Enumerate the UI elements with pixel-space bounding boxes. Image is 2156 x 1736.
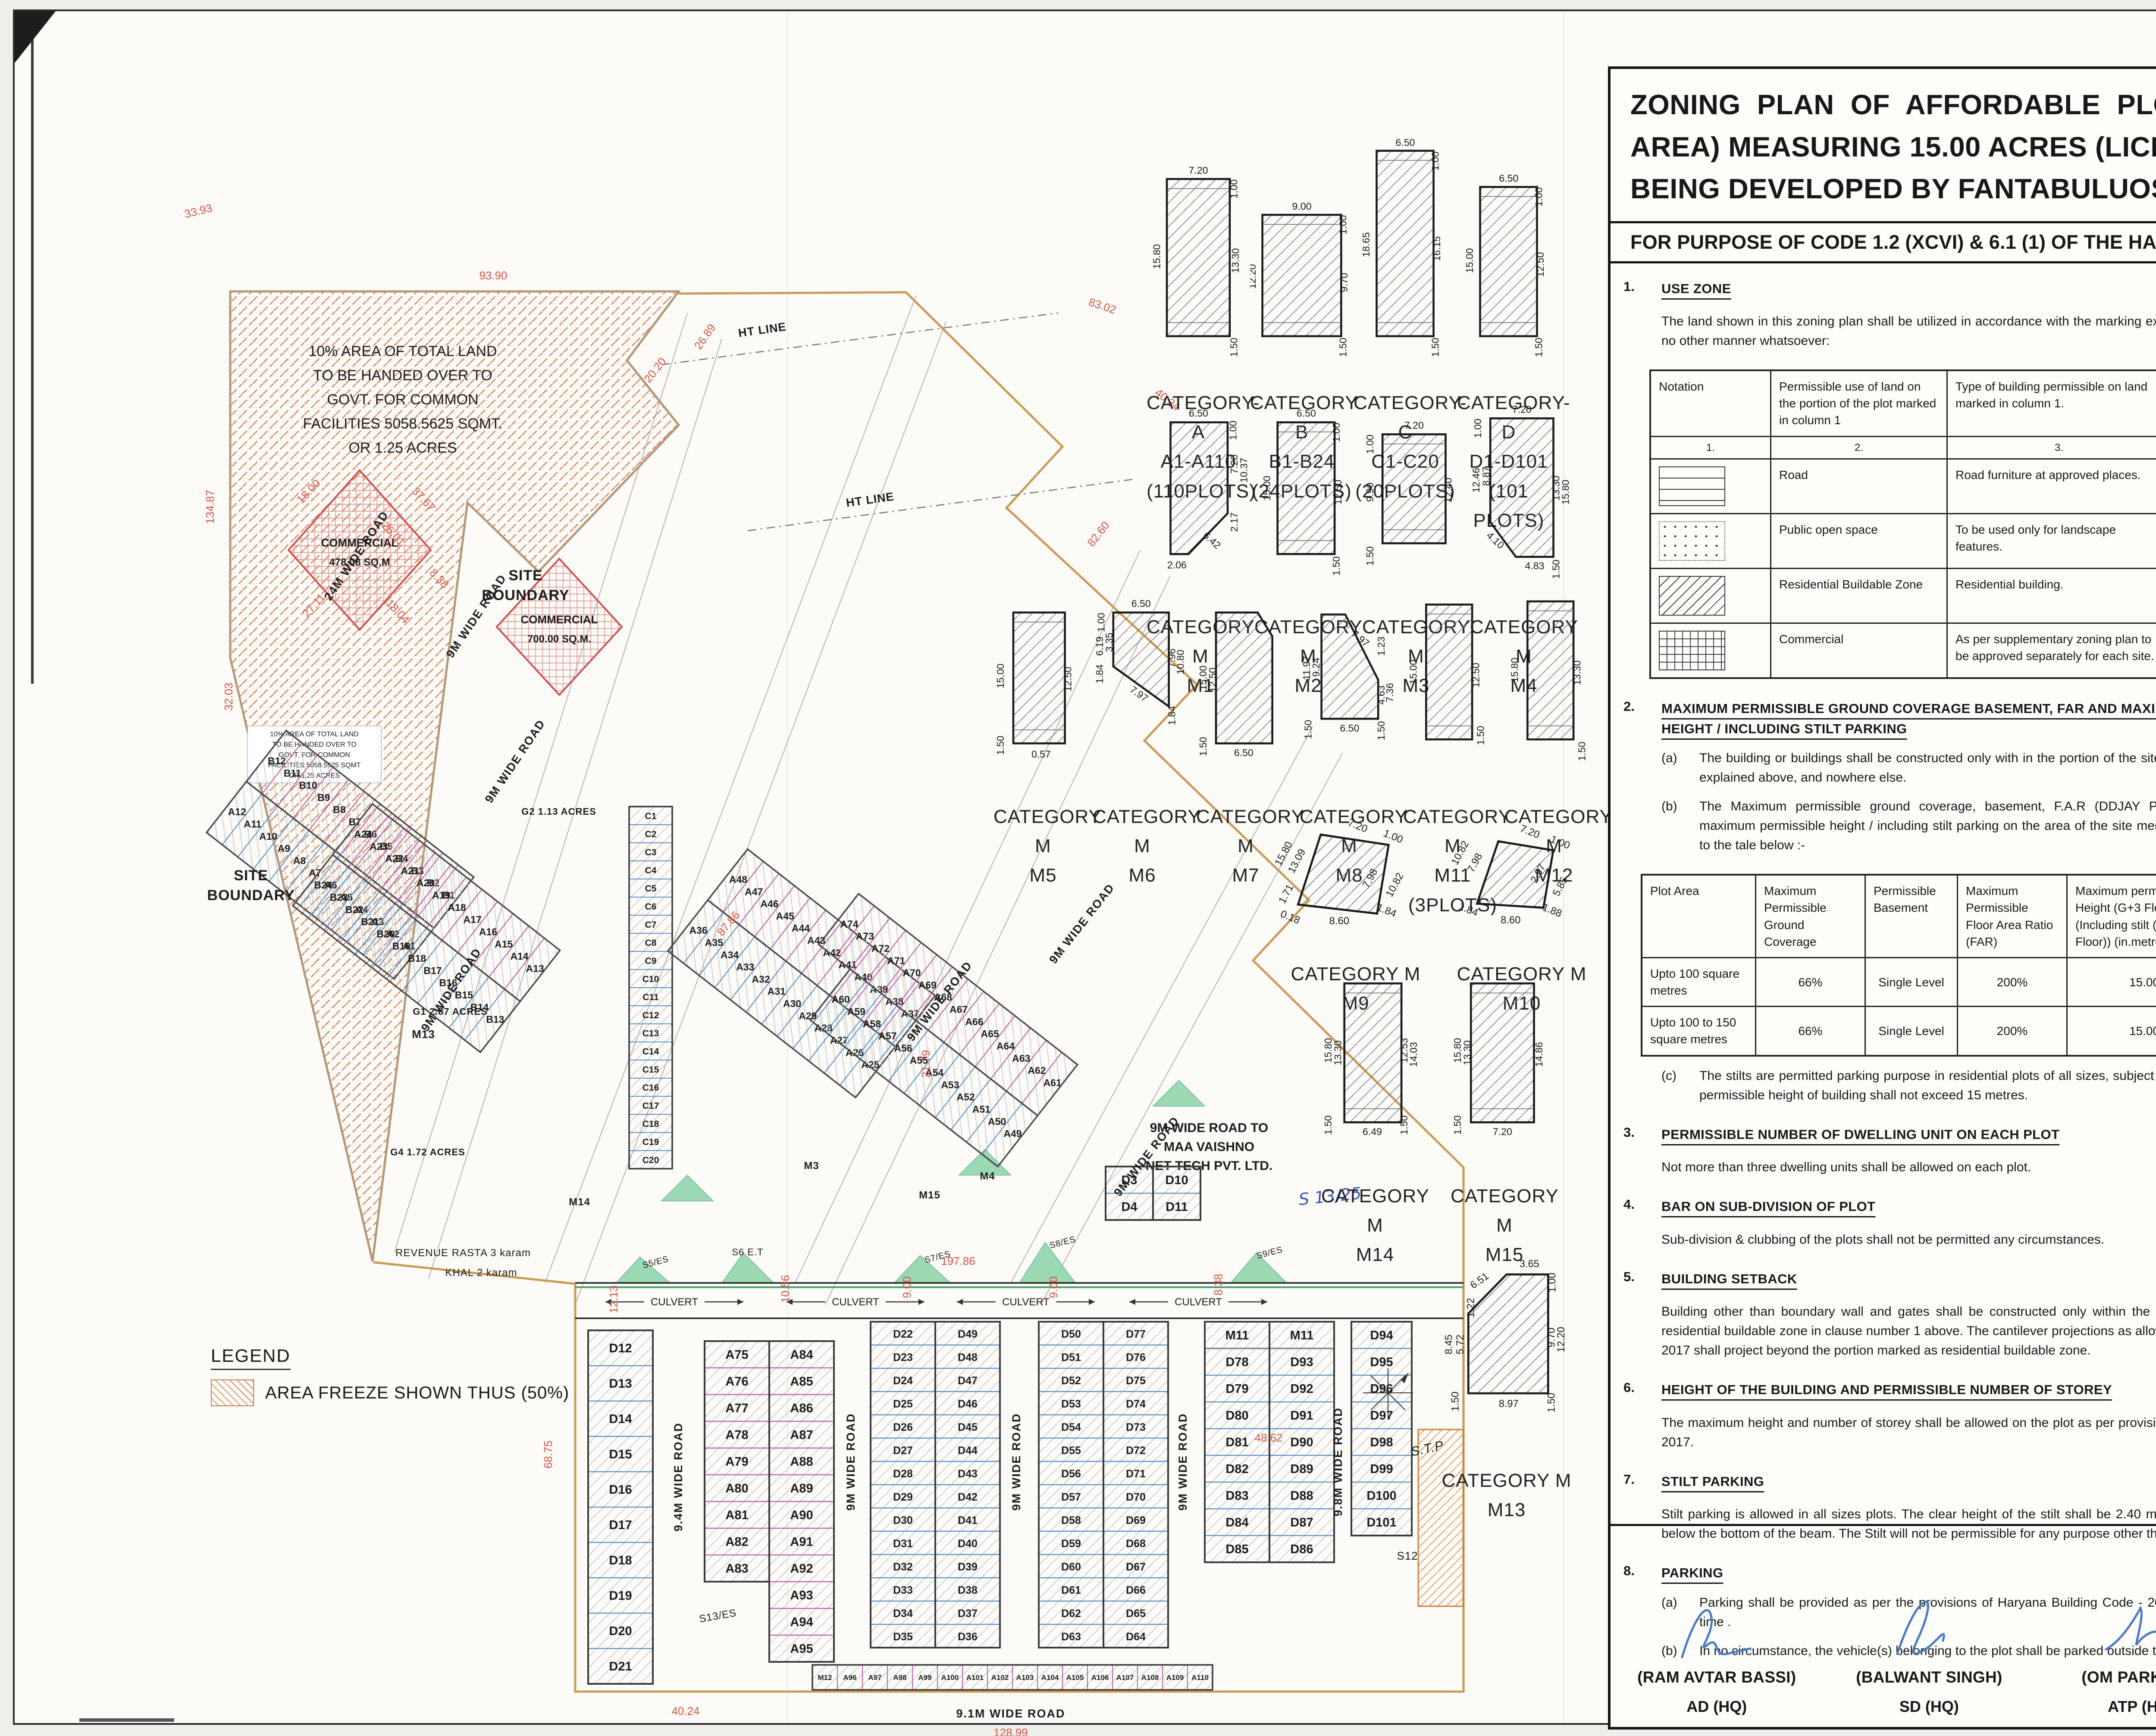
plot-number: C12: [642, 1010, 659, 1020]
plot-number: D61: [1061, 1584, 1081, 1596]
category-caption-line: CATEGORY M: [993, 802, 1093, 861]
plot-number: A103: [1016, 1673, 1034, 1682]
use-zone-header: Permissible use of land on the portion o…: [1771, 370, 1947, 436]
dimension-label: 14.03: [1408, 1042, 1419, 1067]
plot-number: A93: [790, 1589, 813, 1602]
dimension-label: 1.84: [1375, 901, 1398, 920]
dimension-label: 1.50: [1376, 721, 1387, 741]
dimension-label: 7.20: [1189, 165, 1208, 176]
plot-number: C2: [645, 829, 657, 839]
plot-number: A34: [721, 949, 739, 960]
plot-number: A96: [843, 1673, 856, 1682]
handover-note-line: TO BE HANDED OVER TO: [313, 367, 492, 384]
clause-item: (c)The stilts are permitted parking purp…: [1661, 1066, 2156, 1105]
plot-number: D47: [958, 1375, 978, 1387]
plot-number: D79: [1225, 1382, 1248, 1396]
dimension-label: 2.17: [1228, 513, 1240, 532]
green-space: [661, 1175, 713, 1201]
signature-stroke: [2106, 1608, 2156, 1649]
plot-outline: [1377, 151, 1434, 336]
category-caption: CATEGORY MM13: [1433, 1466, 1580, 1525]
category-shape: 15.8013.3014.867.201.50: [1451, 951, 1558, 1179]
notation-cell: [1650, 623, 1771, 679]
plot-number: A22: [385, 853, 403, 864]
plot-number: D69: [1126, 1514, 1146, 1526]
coverage-header: Maximum permissible Height (G+3 Floor) (…: [2067, 875, 2156, 957]
plot-number: D78: [1225, 1355, 1248, 1369]
plot-number: D73: [1126, 1421, 1146, 1433]
dimension-label: 12.20: [1556, 1327, 1567, 1352]
category-shape: 15.8013.301.50: [1504, 572, 1604, 800]
plot-number: A17: [464, 914, 482, 925]
plot-number: D25: [893, 1398, 913, 1410]
handover-note-line: GOVT. FOR COMMON: [327, 391, 478, 408]
scan-mark: [79, 1718, 174, 1722]
plot-number: A8: [293, 855, 306, 866]
dimension-label: 7.20: [1512, 404, 1532, 415]
plot-number: A62: [1028, 1065, 1046, 1076]
plan-text: M13: [412, 1028, 435, 1041]
plot-number: A92: [790, 1562, 813, 1576]
plot-number: A82: [725, 1535, 748, 1549]
dimension-label: 12.50: [1535, 252, 1546, 277]
plot-number: D45: [958, 1421, 978, 1433]
item-tag: (a): [1661, 748, 1699, 787]
plot-outline: [1216, 613, 1272, 744]
plot-number: D10: [1165, 1173, 1188, 1187]
signature-block: (BALWANT SINGH)SD (HQ): [1823, 1592, 2036, 1716]
handover-note-line: 10% AREA OF TOTAL LAND: [308, 343, 497, 360]
plot-number: C11: [642, 992, 659, 1002]
plot-number: D64: [1126, 1631, 1146, 1643]
plot-number: A79: [725, 1455, 748, 1469]
plot-number: D38: [958, 1584, 978, 1596]
plot-number: A12: [228, 806, 246, 817]
plot-number: A97: [868, 1673, 881, 1682]
plot-number: A72: [871, 943, 890, 954]
category-caption: CATEGORY MM14: [1321, 1182, 1429, 1270]
plot-number: D81: [1225, 1436, 1248, 1449]
plot-number: D65: [1126, 1608, 1146, 1620]
plan-text: KHAL 2 karam: [445, 1267, 517, 1279]
plot-number: C6: [645, 902, 657, 912]
plot-number: D68: [1126, 1538, 1146, 1550]
dimension-label: 15.80: [1560, 480, 1571, 505]
plot-number: A14: [510, 951, 528, 962]
use-zone-colnum: 1.: [1650, 436, 1771, 459]
plot-number: A69: [918, 979, 937, 991]
plot-number: D88: [1290, 1489, 1313, 1503]
dimension-label: 13.30: [1230, 248, 1241, 273]
plot-number: D31: [893, 1538, 913, 1550]
plot-number: B12: [268, 755, 286, 766]
plot-number: D67: [1126, 1561, 1146, 1573]
dimension-label: 1.00: [1430, 151, 1441, 171]
plot-number: C20: [642, 1155, 659, 1165]
arrow-head: [1089, 1299, 1095, 1305]
item-text: The stilts are permitted parking purpose…: [1699, 1066, 2156, 1105]
dimension-label: 3.65: [1520, 1258, 1539, 1270]
plan-text: REVENUE RASTA 3 karam: [395, 1247, 531, 1259]
plot-number: C16: [642, 1083, 659, 1093]
arrow-head: [737, 1299, 743, 1305]
category-caption-line: M13: [1433, 1495, 1580, 1525]
green-space: [1153, 1080, 1205, 1106]
plot-number: M11: [1225, 1329, 1249, 1342]
clause: 2.MAXIMUM PERMISSIBLE GROUND COVERAGE BA…: [1623, 699, 2156, 1105]
plot-number: D17: [609, 1518, 632, 1532]
plot-number: D13: [609, 1377, 632, 1391]
plot-number: A19: [432, 890, 450, 901]
category-shape: 3.651.006.511.225.728.459.7012.208.971.5…: [1433, 1236, 1580, 1464]
plot-number: D24: [893, 1375, 913, 1387]
clause-heading: STILT PARKING: [1661, 1472, 1764, 1492]
category-caption-line: CATEGORY M: [1433, 1466, 1580, 1495]
plan-text: M15: [919, 1189, 940, 1201]
dimension-label: 10.82: [1384, 871, 1406, 899]
plot-number: D101: [1366, 1516, 1396, 1530]
category-caption-line: M14: [1321, 1240, 1429, 1270]
plot-number: A61: [1044, 1077, 1062, 1088]
category-caption: CATEGORY MM5: [993, 802, 1093, 891]
dimension-label: 6.50: [1499, 173, 1519, 184]
plot-number: A33: [736, 961, 754, 973]
dimension-label: 8.60: [1329, 915, 1349, 927]
coverage-cell: 15.00: [2067, 1007, 2156, 1056]
dimension-text: 9.00: [900, 1276, 913, 1298]
dimension-label: 1.23: [1376, 637, 1387, 656]
plot-number: A100: [941, 1673, 959, 1682]
plot-number: D12: [609, 1342, 632, 1355]
coverage-header: Permissible Basement: [1865, 875, 1958, 957]
dimension-label: 13.30: [1572, 660, 1583, 685]
arrow-head: [1261, 1299, 1267, 1305]
plot-number: D94: [1370, 1329, 1393, 1342]
dimension-label: 1.84: [1094, 664, 1105, 684]
plot-number: A20: [417, 877, 435, 888]
clause-item: (a)The building or buildings shall be co…: [1661, 748, 2156, 787]
plot-number: D87: [1290, 1516, 1313, 1530]
plot-number: A84: [790, 1348, 813, 1362]
plot-number: D16: [609, 1483, 632, 1497]
legend-title: LEGEND: [211, 1345, 291, 1370]
dimension-label: 1.00: [1382, 827, 1404, 845]
plan-text: SITE: [508, 567, 543, 584]
plot-number: A36: [689, 925, 708, 936]
category-shape: 7.971.2311.979.244.637.366.501.501.50: [1300, 572, 1399, 800]
item-text: The building or buildings shall be const…: [1699, 748, 2156, 787]
site-plan: COMMERCIAL478.08 SQ.MCOMMERCIAL700.00 SQ…: [15, 11, 1608, 1736]
plot-number: D4: [1121, 1200, 1137, 1214]
dimension-label: 9.24: [1310, 657, 1322, 677]
type-cell: Residential building.: [1947, 569, 2156, 623]
dimension-text: 134.87: [204, 490, 216, 524]
road-label: 9.1M WIDE ROAD: [956, 1707, 1065, 1720]
plan-text: S5/ES: [642, 1254, 670, 1270]
notation-cell: [1650, 569, 1771, 623]
dimension-label: 1.88: [1541, 901, 1564, 920]
dimension-label: 7.20: [1346, 816, 1369, 835]
drawing-title: ZONING PLAN OF AFFORDABLE PLOTTED HOUSIN…: [1630, 84, 2156, 210]
dimension-label: 1.00: [1228, 179, 1239, 199]
plot-number: B11: [284, 767, 301, 779]
signatory-name: (BALWANT SINGH): [1823, 1668, 2036, 1686]
dimension-label: 12.46: [1470, 468, 1482, 493]
dimension-label: 1.00: [1472, 419, 1483, 438]
clause-heading: MAXIMUM PERMISSIBLE GROUND COVERAGE BASE…: [1661, 699, 2156, 739]
plan-text: S13/ES: [698, 1607, 737, 1625]
plot-number: B18: [408, 953, 426, 964]
dimension-label: 1.22: [1465, 1298, 1476, 1318]
plot-number: A18: [448, 902, 466, 913]
plot-number: A58: [863, 1018, 881, 1029]
signature-stroke: [1682, 1610, 1750, 1657]
plot-number: A63: [1012, 1053, 1030, 1064]
plot-number: A50: [988, 1116, 1006, 1127]
plot-number: A46: [760, 898, 778, 910]
use-cell: Residential Buildable Zone: [1771, 569, 1947, 623]
category-shape: 10.827.987.201.002.975.858.601.881.84: [1438, 802, 1606, 957]
signatory-title: SD (HQ): [1823, 1698, 2036, 1716]
use-zone-row: RoadRoad furniture at approved places.: [1650, 459, 2156, 514]
dimension-text: 32.03: [222, 682, 235, 710]
dimension-label: 5.85: [1551, 875, 1570, 898]
plot-number: D89: [1290, 1462, 1313, 1476]
plot-number: D35: [893, 1631, 913, 1643]
coverage-cell: Upto 100 square metres: [1642, 957, 1756, 1006]
plot-number: B10: [299, 780, 317, 791]
dimension-label: 1.50: [1364, 546, 1376, 566]
category-diagram: 15.0012.501.500.57CATEGORY MM5: [993, 572, 1093, 891]
plot-number: A51: [972, 1104, 990, 1115]
category-caption-line: CATEGORY M: [1093, 802, 1192, 861]
dimension-label: 9.00: [1292, 200, 1312, 212]
category-shape: 15.8013.097.201.007.9810.828.601.841.710…: [1265, 802, 1446, 957]
clause: 4.BAR ON SUB-DIVISION OF PLOTSub-divisio…: [1623, 1197, 2156, 1249]
plot-number: A45: [776, 910, 794, 922]
plot-number: D97: [1370, 1409, 1393, 1423]
category-caption-line: M6: [1093, 861, 1192, 890]
plot-number: A104: [1041, 1673, 1059, 1682]
clause-paragraph: Not more than three dwelling units shall…: [1661, 1157, 2156, 1177]
plot-number: D92: [1290, 1382, 1313, 1396]
type-cell: As per supplementary zoning plan to be a…: [1947, 623, 2156, 679]
notes-panel: ZONING PLAN OF AFFORDABLE PLOTTED HOUSIN…: [1608, 66, 2156, 1730]
plot-number: A32: [752, 973, 770, 985]
plot-number: C18: [642, 1119, 659, 1129]
dimension-text: 68.75: [542, 1440, 555, 1468]
category-caption-line: CATEGORY M: [1451, 1182, 1558, 1240]
plot-outline: [1013, 613, 1065, 744]
dimension-text: 93.90: [479, 269, 507, 282]
plot-number: A31: [768, 986, 786, 997]
dimension-text: 12.13: [607, 1285, 620, 1313]
plot-number: A78: [725, 1428, 748, 1442]
dimension-label: 1.00: [1096, 613, 1107, 632]
coverage-cell: Upto 100 to 150 square metres: [1642, 1007, 1756, 1056]
plot-number: C13: [642, 1029, 659, 1038]
plot-number: B20: [377, 928, 395, 939]
plot-number: C14: [642, 1047, 659, 1057]
category-shape: 7.201.0015.8013.301.50: [1147, 119, 1250, 386]
dimension-text: 82.60: [1084, 519, 1112, 549]
road-label: 9M WIDE ROAD: [1176, 1413, 1189, 1511]
coverage-cell: Single Level: [1865, 957, 1958, 1006]
plot-outline: [1382, 434, 1445, 543]
plan-text: G2 1.13 ACRES: [521, 806, 596, 817]
dimension-label: 7.36: [1384, 683, 1395, 702]
road-label: 9M WIDE ROAD: [1047, 881, 1117, 966]
category-shape: 9.001.0012.209.701.50: [1250, 119, 1354, 386]
dimension-text: 48.62: [1254, 1431, 1282, 1444]
plot-number: A60: [832, 994, 850, 1005]
dimension-label: 1.50: [1450, 1392, 1461, 1411]
dimension-label: 18.65: [1360, 232, 1372, 257]
plot-number: D49: [958, 1328, 978, 1340]
plot-number: A56: [894, 1042, 912, 1054]
plot-number: D40: [958, 1538, 978, 1550]
clause-heading: USE ZONE: [1661, 279, 1731, 299]
dimension-label: 8.97: [1499, 1398, 1519, 1410]
coverage-header: Maximum Permissible Ground Coverage: [1756, 875, 1865, 957]
dimension-label: 1.00: [1337, 215, 1348, 235]
plot-number: A9: [278, 843, 290, 854]
dimension-label: 12.40: [1442, 478, 1454, 503]
dimension-label: 14.86: [1533, 1042, 1545, 1067]
plot-number: A71: [887, 955, 905, 966]
plot-number: A108: [1141, 1673, 1159, 1682]
plot-number: A53: [941, 1079, 959, 1090]
coverage-header: Maximum Permissible Floor Area Ratio (FA…: [1958, 875, 2067, 957]
ht-line: [661, 313, 1058, 365]
plot-number: B8: [333, 804, 346, 815]
use-zone-row: Public open spaceTo be used only for lan…: [1650, 514, 2156, 569]
plot-number: A59: [847, 1006, 865, 1017]
plot-number: A48: [729, 874, 747, 885]
signatory-title: ATP (HQ): [2035, 1698, 2156, 1716]
plan-text: G1 2.87 ACRES: [413, 1006, 488, 1017]
clause-number: 5.: [1623, 1269, 1661, 1289]
plot-number: A35: [705, 937, 723, 948]
plot-number: A44: [792, 923, 810, 934]
dimension-label: 13.30: [1461, 1040, 1473, 1065]
plot-number: D41: [958, 1514, 978, 1526]
use-zone-header: Type of building permissible on land mar…: [1947, 370, 2156, 436]
dimension-label: 15.80: [1151, 244, 1162, 269]
plot-number: A16: [479, 926, 497, 938]
dimension-text: 26.89: [692, 322, 718, 352]
dimension-label: 15.00: [1407, 660, 1419, 685]
plan-text: G4 1.72 ACRES: [390, 1147, 465, 1157]
zoning-plan-sheet: COMMERCIAL478.08 SQ.MCOMMERCIAL700.00 SQ…: [0, 0, 2156, 1736]
plot-number: A110: [1191, 1673, 1209, 1682]
plot-number: A47: [745, 886, 763, 897]
dimension-label: 1.50: [1546, 1393, 1557, 1413]
plot-number: B19: [392, 941, 411, 952]
type-cell: Road furniture at approved places.: [1947, 459, 2156, 514]
dimension-label: 10.37: [1238, 458, 1249, 483]
plot-number: D22: [893, 1328, 913, 1340]
dimension-label: 0.18: [1279, 908, 1302, 926]
clause-paragraph: Sub-division & clubbing of the plots sha…: [1661, 1230, 2156, 1249]
plot-number: A99: [918, 1673, 931, 1682]
plot-number: C7: [645, 920, 657, 930]
dimension-text: 20.20: [641, 355, 669, 385]
plot-number: D26: [893, 1421, 913, 1433]
ht-line: [748, 479, 1136, 531]
dimension-label: 15.80: [1509, 657, 1520, 682]
coverage-cell: 66%: [1756, 1007, 1865, 1056]
plot-number: A74: [840, 918, 858, 929]
clauses-column-left: 1.USE ZONEThe land shown in this zoning …: [1611, 263, 2156, 1524]
dimension-label: 8.87: [1480, 466, 1492, 486]
plot-number: D91: [1290, 1409, 1313, 1423]
plot-number: C10: [642, 974, 659, 984]
plot-number: D74: [1126, 1398, 1146, 1410]
plot-number: A89: [790, 1482, 813, 1495]
subtitle-block: FOR PURPOSE OF CODE 1.2 (XCVI) & 6.1 (1)…: [1611, 223, 2156, 263]
plot-number: A90: [790, 1508, 813, 1522]
dimension-label: 12.50: [1062, 667, 1073, 692]
plot-number: D46: [958, 1398, 978, 1410]
plot-number: C8: [645, 938, 657, 948]
plot-number: D53: [1061, 1398, 1081, 1410]
plot-number: D15: [609, 1448, 632, 1461]
plot-number: A57: [878, 1030, 896, 1042]
plot-number: D63: [1061, 1631, 1081, 1643]
dimension-label: 15.00: [1464, 248, 1475, 273]
plot-number: D27: [893, 1445, 913, 1457]
clause-heading: BAR ON SUB-DIVISION OF PLOT: [1661, 1197, 1875, 1217]
plan-text: M3: [804, 1160, 819, 1172]
dimension-label: 12.50: [1332, 480, 1344, 505]
plot-number: C1: [645, 811, 657, 821]
clause-paragraph: The land shown in this zoning plan shall…: [1661, 312, 2156, 350]
plot-number: D37: [958, 1608, 978, 1620]
use-cell: Commercial: [1771, 623, 1947, 679]
clause-paragraph: The maximum height and number of storey …: [1661, 1413, 2156, 1452]
drawing-sheet: COMMERCIAL478.08 SQ.MCOMMERCIAL700.00 SQ…: [13, 9, 2156, 1725]
plot-number: D99: [1370, 1462, 1393, 1476]
plot-number: D29: [893, 1491, 913, 1503]
plot-number: B22: [345, 904, 364, 915]
plot-number: A106: [1091, 1673, 1109, 1682]
road-label: 9.4M WIDE ROAD: [672, 1422, 685, 1531]
plot-outline: [1480, 187, 1537, 336]
plot-number: A81: [725, 1508, 748, 1522]
signature-scribble: [1669, 1592, 1764, 1666]
plot-number: D18: [609, 1554, 632, 1567]
coverage-cell: 15.00: [2067, 957, 2156, 1006]
dimension-text: 40.24: [671, 1705, 699, 1717]
plot-number: A73: [856, 931, 874, 942]
plot-number: D54: [1061, 1421, 1081, 1433]
plot-number: C4: [645, 866, 657, 876]
dimension-label: 1.50: [1475, 726, 1486, 745]
item-tag: (b): [1661, 797, 1699, 855]
plot-number: A94: [790, 1615, 813, 1629]
plot-number: A13: [526, 963, 544, 974]
clause-paragraph: Building other than boundary wall and ga…: [1661, 1302, 2156, 1360]
plan-text: S6 E.T: [732, 1247, 763, 1257]
plan-text: S12: [1397, 1549, 1418, 1562]
handover-note-line: OR 1.25 ACRES: [348, 440, 457, 456]
plot-number: D59: [1061, 1538, 1081, 1550]
plot-number: D83: [1225, 1489, 1248, 1503]
use-zone-table: NotationPermissible use of land on the p…: [1649, 369, 2156, 679]
scan-artifact-corner: [15, 11, 56, 63]
plot-number: A66: [965, 1016, 983, 1027]
